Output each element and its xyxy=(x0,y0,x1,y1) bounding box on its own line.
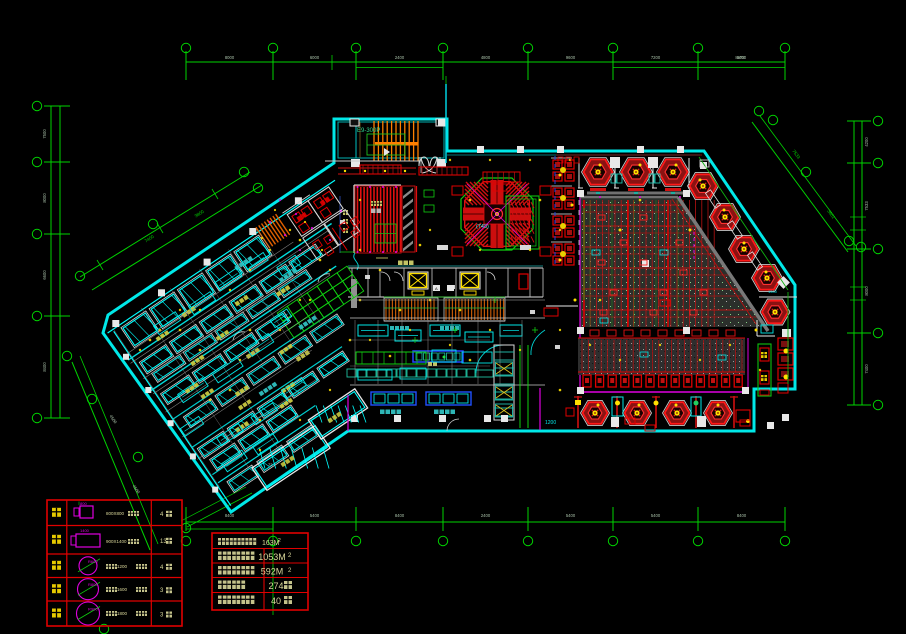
svg-text:7200: 7200 xyxy=(651,55,661,60)
svg-text:(748): (748) xyxy=(476,224,489,230)
svg-text:7500: 7500 xyxy=(42,129,47,139)
svg-text:592M: 592M xyxy=(261,567,284,577)
svg-text:8400: 8400 xyxy=(225,513,235,518)
svg-text:6000: 6000 xyxy=(310,55,320,60)
svg-text:1500: 1500 xyxy=(768,289,778,294)
svg-text:1053M: 1053M xyxy=(258,552,286,562)
svg-text:A: A xyxy=(435,286,438,291)
svg-text:1800: 1800 xyxy=(117,611,128,616)
svg-text:1400: 1400 xyxy=(80,528,90,533)
svg-text:2: 2 xyxy=(278,538,281,544)
svg-text:1200: 1200 xyxy=(545,420,556,426)
svg-text:1600: 1600 xyxy=(117,587,128,592)
svg-text:5400: 5400 xyxy=(310,513,320,518)
svg-text:7400: 7400 xyxy=(864,364,869,374)
svg-text:900X1400: 900X1400 xyxy=(106,539,127,544)
svg-text:5400: 5400 xyxy=(566,513,576,518)
svg-text:7533: 7533 xyxy=(864,201,869,211)
svg-text:8000: 8000 xyxy=(225,55,235,60)
svg-text:6600: 6600 xyxy=(42,270,47,280)
svg-text:4200: 4200 xyxy=(864,137,869,147)
svg-text:8400: 8400 xyxy=(395,513,405,518)
svg-text:2400: 2400 xyxy=(395,55,405,60)
svg-text:800: 800 xyxy=(80,501,87,506)
svg-text:R900: R900 xyxy=(88,607,98,612)
svg-text:800X800: 800X800 xyxy=(106,511,125,516)
svg-text:72: 72 xyxy=(268,462,273,467)
svg-text:R800: R800 xyxy=(88,582,98,587)
svg-text:R600: R600 xyxy=(88,559,98,564)
svg-text:8000: 8000 xyxy=(42,193,47,203)
svg-text:40: 40 xyxy=(271,596,281,606)
svg-text:E9-300P: E9-300P xyxy=(357,128,380,134)
svg-text:274: 274 xyxy=(268,581,283,591)
svg-text:8400: 8400 xyxy=(737,513,747,518)
svg-text:2400: 2400 xyxy=(481,513,491,518)
svg-text:8000: 8000 xyxy=(864,286,869,296)
svg-text:9600: 9600 xyxy=(566,55,576,60)
svg-text:1200: 1200 xyxy=(117,564,128,569)
svg-text:8400: 8400 xyxy=(42,362,47,372)
svg-text:8478: 8478 xyxy=(735,55,745,60)
svg-text:4800: 4800 xyxy=(481,55,491,60)
svg-text:5400: 5400 xyxy=(651,513,661,518)
